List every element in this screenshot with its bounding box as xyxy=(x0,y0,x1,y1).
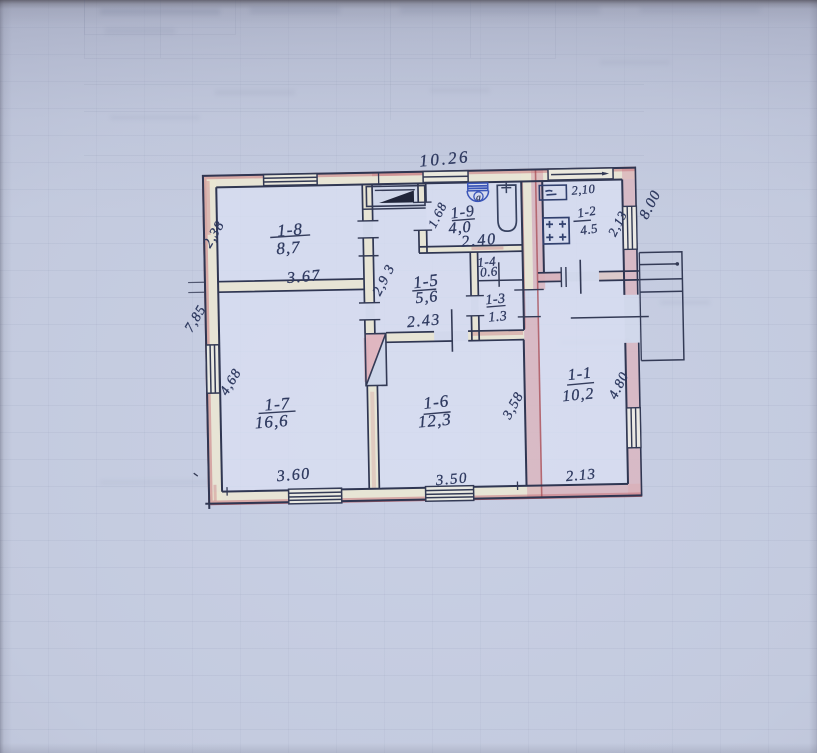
svg-text:8,7: 8,7 xyxy=(276,237,302,258)
svg-text:3.67: 3.67 xyxy=(285,267,321,287)
svg-text:4.5: 4.5 xyxy=(579,220,599,238)
svg-text:16,6: 16,6 xyxy=(254,411,289,432)
svg-text:5,6: 5,6 xyxy=(415,288,439,307)
svg-text:10.26: 10.26 xyxy=(419,147,471,170)
svg-text:a: a xyxy=(476,193,481,203)
svg-text:2.43: 2.43 xyxy=(406,311,441,331)
svg-text:1-1: 1-1 xyxy=(567,365,593,384)
svg-text:12,3: 12,3 xyxy=(417,410,452,432)
svg-text:10,2: 10,2 xyxy=(562,385,595,405)
svg-text:0.6: 0.6 xyxy=(479,263,498,280)
svg-text:3.60: 3.60 xyxy=(275,465,311,485)
svg-text:1-2: 1-2 xyxy=(576,203,597,221)
svg-text:8.00: 8.00 xyxy=(637,188,665,222)
svg-text:1.3: 1.3 xyxy=(488,309,508,326)
svg-text:2,10: 2,10 xyxy=(571,182,596,198)
svg-text:2.13: 2.13 xyxy=(565,466,597,485)
svg-text:3.50: 3.50 xyxy=(434,470,469,489)
svg-text:2.40: 2.40 xyxy=(461,231,498,251)
